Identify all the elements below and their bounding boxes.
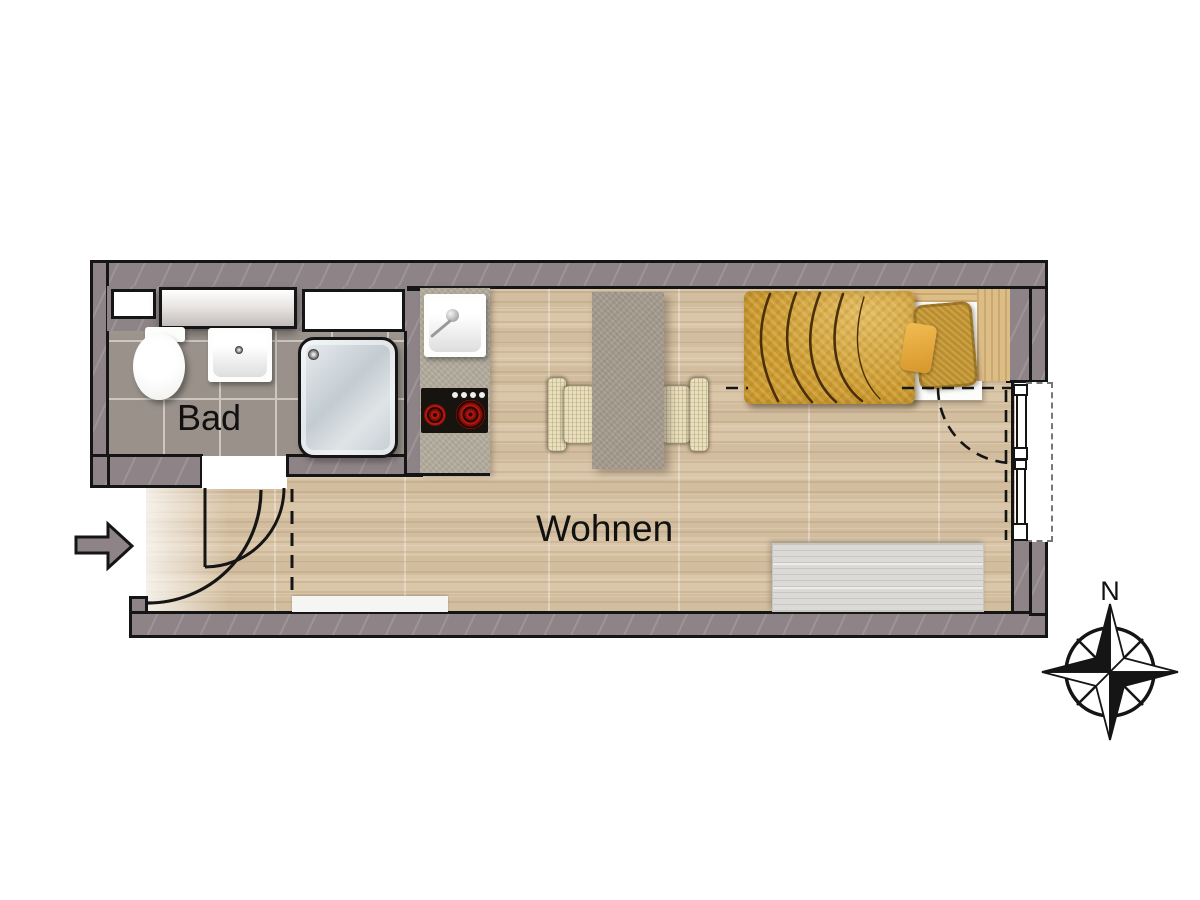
bed-headboard-side: [977, 289, 1010, 381]
room-label-living: Wohnen: [536, 510, 673, 547]
stove-knob-2: [461, 392, 467, 398]
duvet-fold-lines: [744, 291, 915, 404]
bathroom-vanity-shelf: [159, 287, 297, 329]
stove-knob-1: [452, 392, 458, 398]
toilet-bowl: [133, 333, 185, 400]
hallway-floor: [146, 474, 426, 613]
stove-knob-4: [479, 392, 485, 398]
chair-left-seat: [564, 386, 594, 443]
bathroom-niche-small: [111, 289, 156, 319]
entry-arrow-icon: [76, 524, 132, 568]
room-label-bathroom: Bad: [177, 400, 241, 436]
top-exterior-wall: [90, 260, 1048, 289]
window-sash-lower: [1016, 461, 1026, 532]
chair-right-backrest: [690, 378, 708, 451]
dining-table: [592, 292, 664, 469]
stove-knob-3: [470, 392, 476, 398]
right-wall-below-window-outer: [1029, 537, 1048, 616]
bed-duvet: [744, 291, 915, 404]
window-sash-lower-block-top: [1014, 459, 1027, 470]
bathroom-niche-large: [302, 289, 405, 332]
compass-north-label: N: [1093, 578, 1127, 605]
entry-ledge: [292, 596, 448, 612]
floorplan: Bad Wohnen N: [0, 0, 1200, 900]
shower-drain-icon: [308, 349, 319, 360]
right-wall-pier-outer: [1029, 286, 1048, 383]
sideboard: [772, 543, 984, 612]
bathroom-door-threshold: [202, 456, 287, 489]
compass-rose-icon: [1042, 604, 1178, 740]
bottom-exterior-wall: [129, 611, 1048, 638]
window-sash-lower-block-bottom: [1012, 523, 1028, 541]
stove-burner-left: [424, 404, 446, 426]
bathroom-bottom-wall-left: [107, 454, 203, 488]
kitchen-sink: [424, 294, 486, 357]
bathroom-sink-drain-icon: [235, 346, 243, 354]
balcony-door-sash-upper-block-top: [1013, 384, 1028, 396]
bathroom-sink: [208, 328, 272, 382]
chair-right-seat: [662, 386, 690, 443]
window-outer-sill: [1026, 382, 1053, 542]
stove-burner-right: [456, 400, 485, 429]
